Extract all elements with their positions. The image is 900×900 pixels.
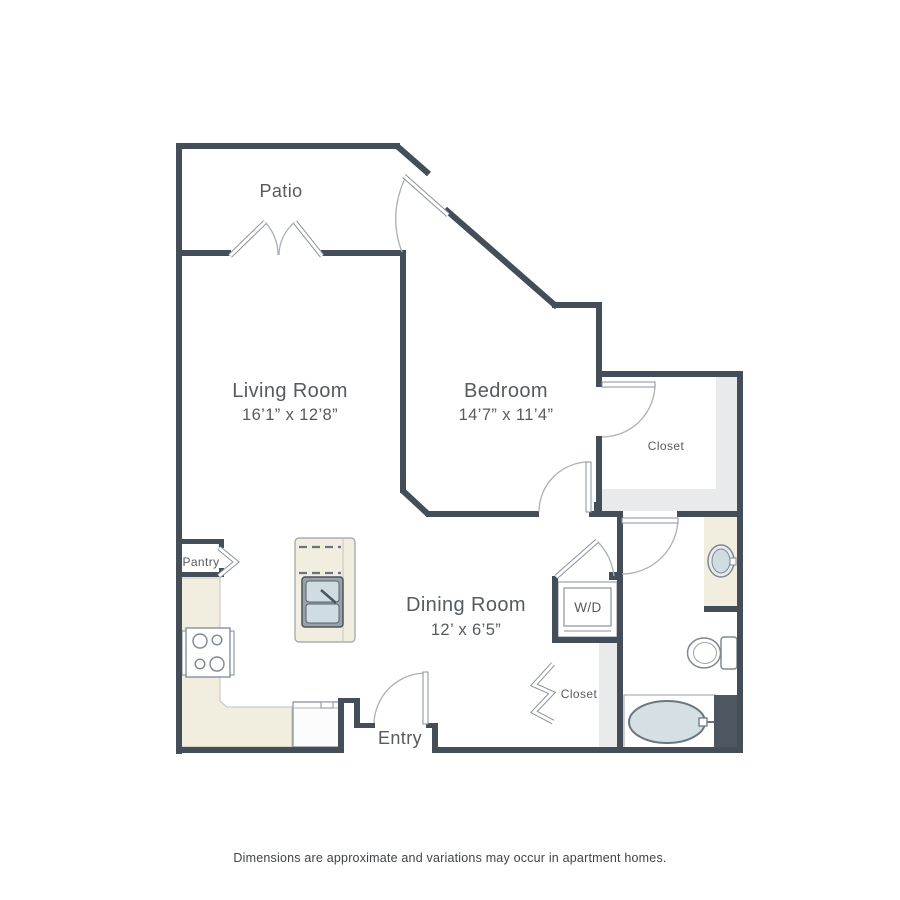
bathroom-door-swing [622,518,678,574]
faucet-icon [730,558,736,565]
dining-room-label: Dining Room [406,594,526,616]
bathtub [624,695,738,748]
faucet-icon [699,718,707,726]
pantry-label: Pantry [182,555,219,569]
hall-closet-label: Closet [561,687,598,701]
entry-door-leaf [423,672,428,724]
kitchen-island-sink [302,577,343,627]
french-door-right-swing [279,222,295,255]
pantry-bifold-door [219,548,236,576]
tub-surround-block [714,695,738,748]
bedroom-closet-label: Closet [648,439,685,453]
floorplan-page: Patio Living Room 16’1” x 12’8” Bedroom … [0,0,900,900]
patio-diagonal-door-swing [396,178,405,252]
bathroom-door-leaf [622,518,678,523]
bedroom-closet-door-swing [602,384,655,437]
entry-door-swing [374,673,426,723]
floorplan-drawing: Patio Living Room 16’1” x 12’8” Bedroom … [0,0,900,900]
washer-dryer-label: W/D [574,600,601,615]
living-room-dimensions: 16’1” x 12’8” [242,406,338,424]
dining-room-dimensions: 12’ x 6’5” [431,621,501,639]
toilet [688,637,738,669]
fridge-handle-icon [321,702,333,708]
bedroom-dimensions: 14’7” x 11’4” [459,406,554,424]
bedroom-closet-door-leaf [602,382,655,387]
refrigerator [293,702,339,747]
disclaimer-text: Dimensions are approximate and variation… [233,851,666,865]
laundry-door-swing [597,541,614,576]
bedroom-label: Bedroom [464,380,548,402]
bedroom-door-swing [539,462,588,512]
patio-label: Patio [259,181,302,201]
bedroom-door-leaf [586,462,591,512]
entry-label: Entry [378,728,422,748]
living-room-label: Living Room [232,380,348,402]
range-stove [182,628,234,677]
french-door-left-swing [265,222,278,255]
